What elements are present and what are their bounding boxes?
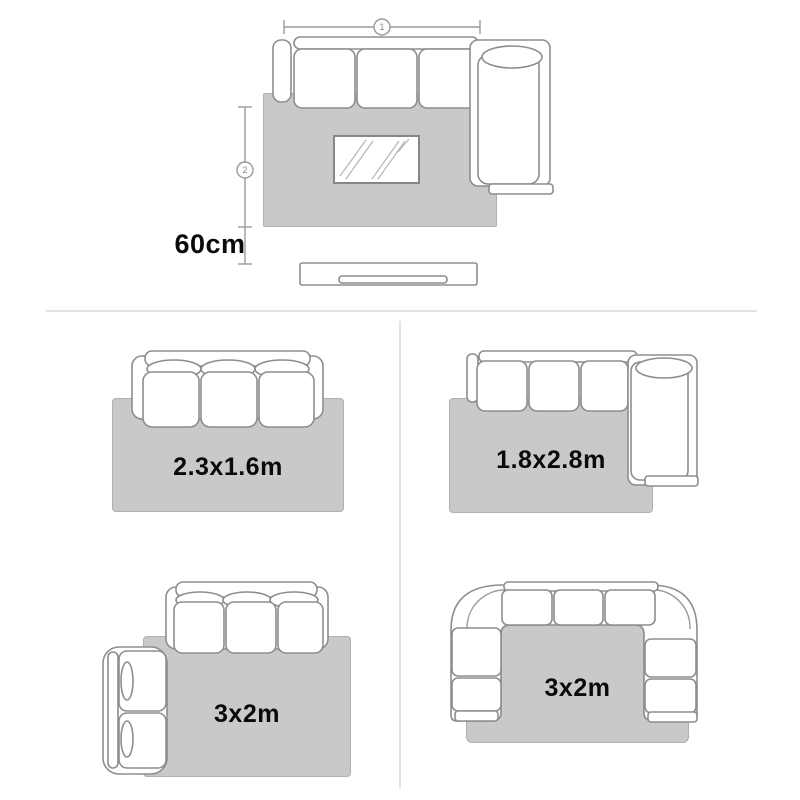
clearance-label: 60cm bbox=[168, 229, 252, 259]
seat-cushion bbox=[502, 590, 552, 625]
chaise-cushion bbox=[478, 55, 539, 184]
seat-cushion bbox=[357, 49, 417, 108]
rug-size-label-q4: 3x2m bbox=[466, 673, 689, 703]
loveseat-pillow bbox=[121, 721, 133, 757]
depth-marker-number: 2 bbox=[242, 165, 247, 175]
seat-cushion bbox=[419, 49, 477, 108]
tv-console bbox=[300, 263, 477, 285]
width-marker-number: 1 bbox=[379, 22, 384, 32]
chaise-foot-bar bbox=[489, 184, 553, 194]
section-divider-horizontal bbox=[46, 310, 757, 312]
q3-sofa-and-loveseat bbox=[103, 582, 328, 774]
chaise-foot-bar bbox=[645, 476, 698, 486]
rug-size-label-q2: 1.8x2.8m bbox=[449, 445, 653, 475]
sofa-foot-bar bbox=[648, 712, 697, 722]
dimension-line-width: 1 bbox=[284, 19, 480, 35]
rug-size-label-q3: 3x2m bbox=[143, 699, 351, 729]
seat-cushion bbox=[529, 361, 579, 411]
seat-cushion bbox=[477, 361, 527, 411]
chaise-bolster-pillow bbox=[636, 358, 692, 378]
seat-cushion bbox=[201, 372, 257, 427]
coffee-table bbox=[334, 136, 419, 183]
rug-size-guide-image: 1 2 bbox=[0, 0, 800, 800]
loveseat-backrest bbox=[108, 652, 118, 768]
seat-cushion bbox=[226, 602, 276, 653]
seat-cushion bbox=[645, 639, 696, 677]
loveseat-pillow bbox=[121, 662, 133, 700]
seat-cushion bbox=[259, 372, 314, 427]
section-divider-vertical bbox=[399, 321, 401, 789]
q1-three-seat-sofa bbox=[132, 351, 323, 427]
seat-cushion bbox=[581, 361, 628, 411]
sofa-foot-bar bbox=[455, 711, 498, 721]
tv-console-screen-bar bbox=[339, 276, 447, 283]
rug-size-label-q1: 2.3x1.6m bbox=[112, 452, 344, 482]
sofa-backrest bbox=[294, 37, 478, 49]
chaise-bolster-pillow bbox=[482, 46, 542, 68]
seat-cushion bbox=[605, 590, 655, 625]
sofa-left-armrest bbox=[273, 40, 291, 102]
seat-cushion bbox=[554, 590, 603, 625]
seat-cushion bbox=[278, 602, 323, 653]
seat-cushion bbox=[452, 628, 501, 676]
seat-cushion bbox=[294, 49, 355, 108]
seat-cushion bbox=[143, 372, 199, 427]
seat-cushion bbox=[174, 602, 224, 653]
